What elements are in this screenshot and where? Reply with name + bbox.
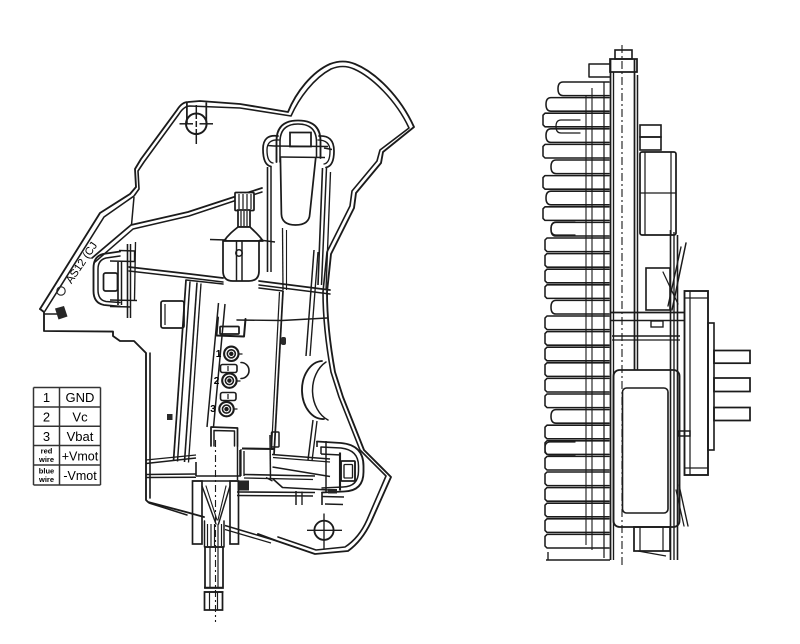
svg-text:1: 1 [216,349,222,360]
svg-text:wire: wire [38,475,54,484]
svg-text:1: 1 [43,390,50,405]
svg-text:GND: GND [66,390,95,405]
svg-text:wire: wire [38,455,54,464]
svg-text:2: 2 [214,376,220,387]
svg-text:Vbat: Vbat [67,429,94,444]
svg-text:3: 3 [210,404,216,415]
svg-text:+Vmot: +Vmot [62,450,99,464]
svg-text:3: 3 [43,429,50,444]
svg-text:2: 2 [43,410,50,425]
svg-text:Vc: Vc [72,410,88,425]
svg-text:-Vmot: -Vmot [63,469,97,483]
